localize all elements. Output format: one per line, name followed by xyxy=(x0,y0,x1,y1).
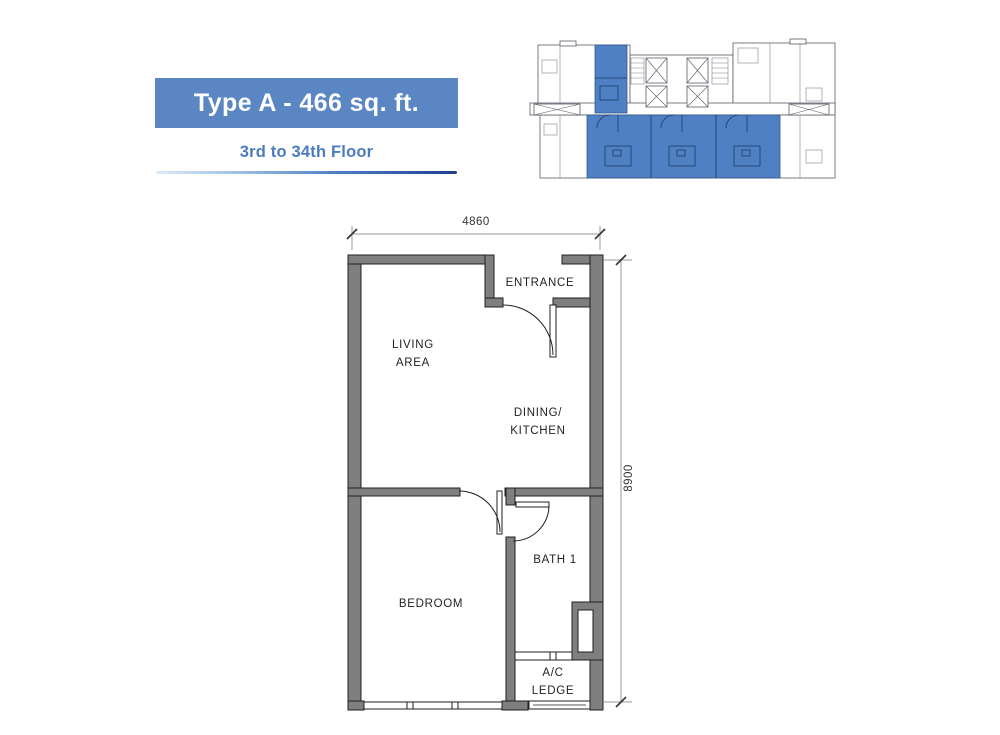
living-area-label: LIVING AREA xyxy=(392,337,434,373)
floorplan-drawing xyxy=(0,0,1000,735)
floorplan-walls xyxy=(348,255,603,710)
bedroom-label: BEDROOM xyxy=(399,596,463,614)
dining-kitchen-label: DINING/ KITCHEN xyxy=(510,405,565,441)
ac-ledge-label: A/C LEDGE xyxy=(532,665,575,701)
entrance-label: ENTRANCE xyxy=(506,275,575,293)
page-root: Type A - 466 sq. ft. 3rd to 34th Floor xyxy=(0,0,1000,735)
height-dimension-label: 8900 xyxy=(623,464,635,492)
bath-label: BATH 1 xyxy=(533,552,577,570)
building-key-plan xyxy=(530,39,835,178)
width-dimension-label: 4860 xyxy=(462,216,490,228)
